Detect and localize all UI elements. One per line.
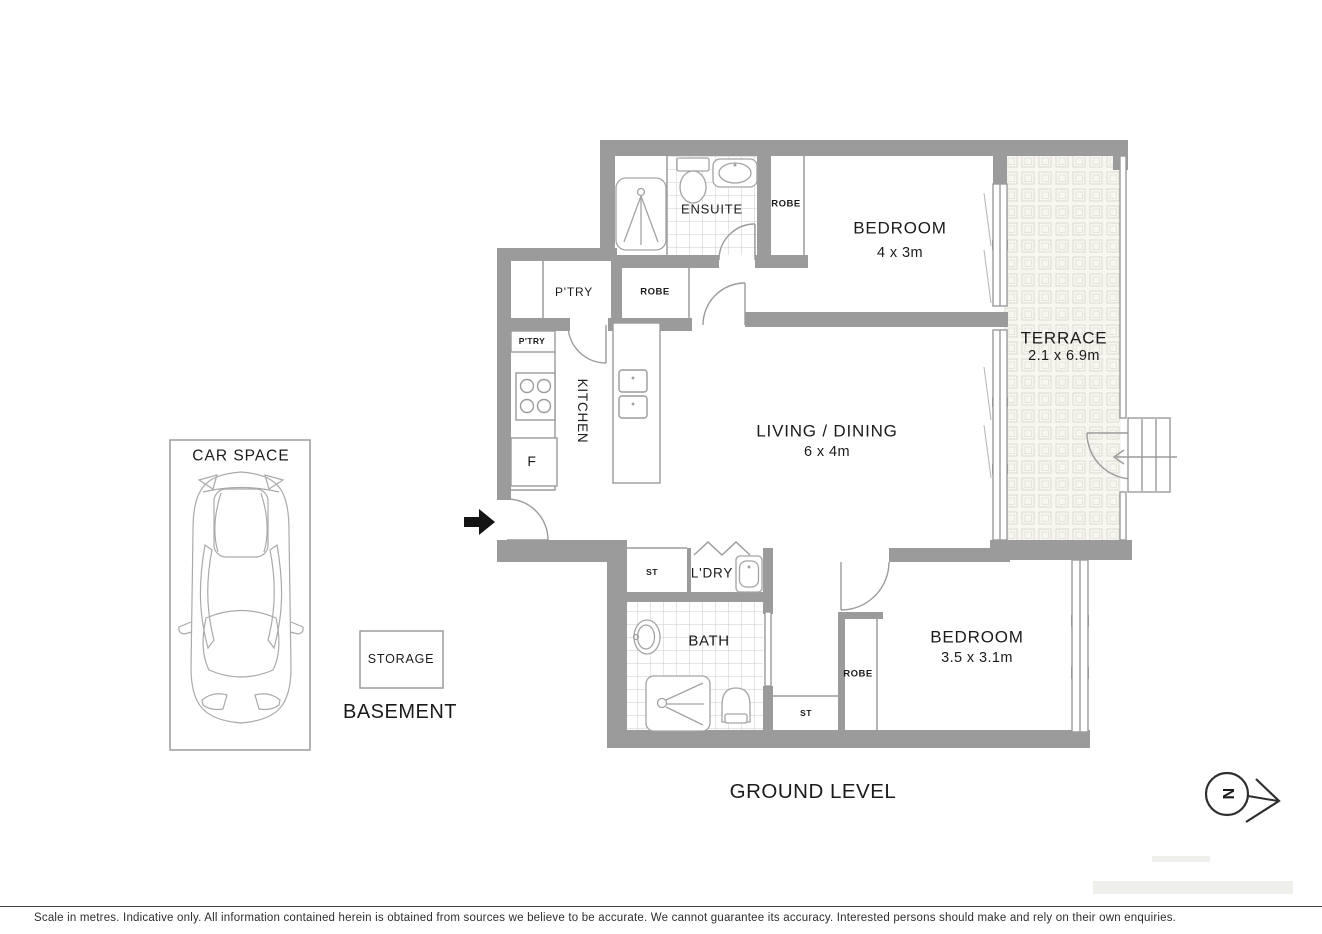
store-laundry-label: ST xyxy=(646,568,658,577)
north-arrow-icon xyxy=(1206,773,1279,822)
wall-laundry-bottom xyxy=(620,592,770,602)
storage-label: STORAGE xyxy=(368,653,435,666)
living-dining-dims: 6 x 4m xyxy=(804,445,850,460)
wall-bedroom1-bottom xyxy=(745,312,1008,327)
toilet-bath-icon xyxy=(722,688,750,723)
footer-disclaimer: Scale in metres. Indicative only. All in… xyxy=(0,906,1322,924)
wall-bottom xyxy=(613,730,1090,748)
car-space-outline xyxy=(170,440,310,750)
door-laundry-bifold xyxy=(694,542,750,555)
wall-bath-left xyxy=(607,560,627,748)
bedroom1-name: BEDROOM xyxy=(853,220,946,237)
watermark xyxy=(1093,856,1293,894)
terrace-stairs-icon xyxy=(1114,418,1177,492)
bedroom1-dims: 4 x 3m xyxy=(877,246,923,261)
laundry-tub-icon xyxy=(736,556,762,592)
car-space-label: CAR SPACE xyxy=(192,448,289,464)
door-pantry xyxy=(568,325,606,363)
wall-robe2-top xyxy=(838,612,883,619)
wall-ensuite-robe xyxy=(757,156,771,255)
ground-level-title: GROUND LEVEL xyxy=(730,782,897,803)
wall-pantry-top xyxy=(497,248,617,261)
terrace-name: TERRACE xyxy=(1021,330,1108,347)
robe-hall-label: ROBE xyxy=(640,287,669,297)
wall-terrace-bottom xyxy=(990,540,1132,560)
wall-pantry-bottom-left xyxy=(497,318,570,331)
ensuite-label: ENSUITE xyxy=(681,203,743,216)
cooktop xyxy=(516,373,555,420)
kitchen-label: KITCHEN xyxy=(575,379,589,444)
living-dining-name: LIVING / DINING xyxy=(756,423,897,440)
sink-bath-icon xyxy=(634,620,661,654)
wall-top xyxy=(600,140,1128,156)
window-opening-ticks xyxy=(984,193,991,478)
wall-bath-right-lower xyxy=(763,686,773,732)
island-sink-1 xyxy=(619,370,647,392)
floorplan-page: ENSUITE ROBE BEDROOM 4 x 3m TERRACE 2.1 … xyxy=(0,0,1322,934)
shower-bath-icon xyxy=(646,676,710,731)
wall-window-block-top xyxy=(993,156,1007,184)
shower-ensuite-icon xyxy=(616,178,666,250)
pantry-cupboard-label: P'TRY xyxy=(519,337,545,346)
wall-laundry-right xyxy=(763,548,773,614)
toilet-ensuite-icon xyxy=(677,158,709,203)
sink-ensuite-icon xyxy=(713,159,757,187)
entry-arrow-icon xyxy=(464,509,495,535)
door-entry xyxy=(507,499,548,540)
bedroom2-name: BEDROOM xyxy=(930,629,1023,646)
wall-ensuite-bottom xyxy=(615,255,719,268)
laundry-label: L'DRY xyxy=(691,566,733,580)
wall-below-entry xyxy=(497,540,627,562)
wall-kitchen-divider xyxy=(611,261,622,331)
bedroom2-dims: 3.5 x 3.1m xyxy=(941,651,1013,666)
terrace-dims: 2.1 x 6.9m xyxy=(1028,349,1100,364)
wall-robe1-bottom xyxy=(755,255,808,268)
basement-title: BASEMENT xyxy=(343,702,457,722)
robe-bedroom1-label: ROBE xyxy=(771,199,800,209)
door-bath-slider xyxy=(765,612,771,686)
door-bedroom1 xyxy=(703,283,745,325)
door-bedroom2 xyxy=(841,562,889,610)
north-letter: N xyxy=(1219,788,1235,800)
island-sink-2 xyxy=(619,396,647,418)
store-bedroom2-label: ST xyxy=(800,709,812,718)
bath-label: BATH xyxy=(688,634,729,649)
fridge-label: F xyxy=(527,454,536,468)
terrace-right-edge-lower xyxy=(1120,492,1126,540)
pantry-label: P'TRY xyxy=(555,286,593,298)
robe-bedroom2-label: ROBE xyxy=(843,669,872,679)
terrace-right-edge-upper xyxy=(1120,156,1126,418)
floorplan-drawing xyxy=(0,0,1322,934)
wall-left xyxy=(497,248,511,500)
wall-topleft-vertical xyxy=(600,140,615,258)
